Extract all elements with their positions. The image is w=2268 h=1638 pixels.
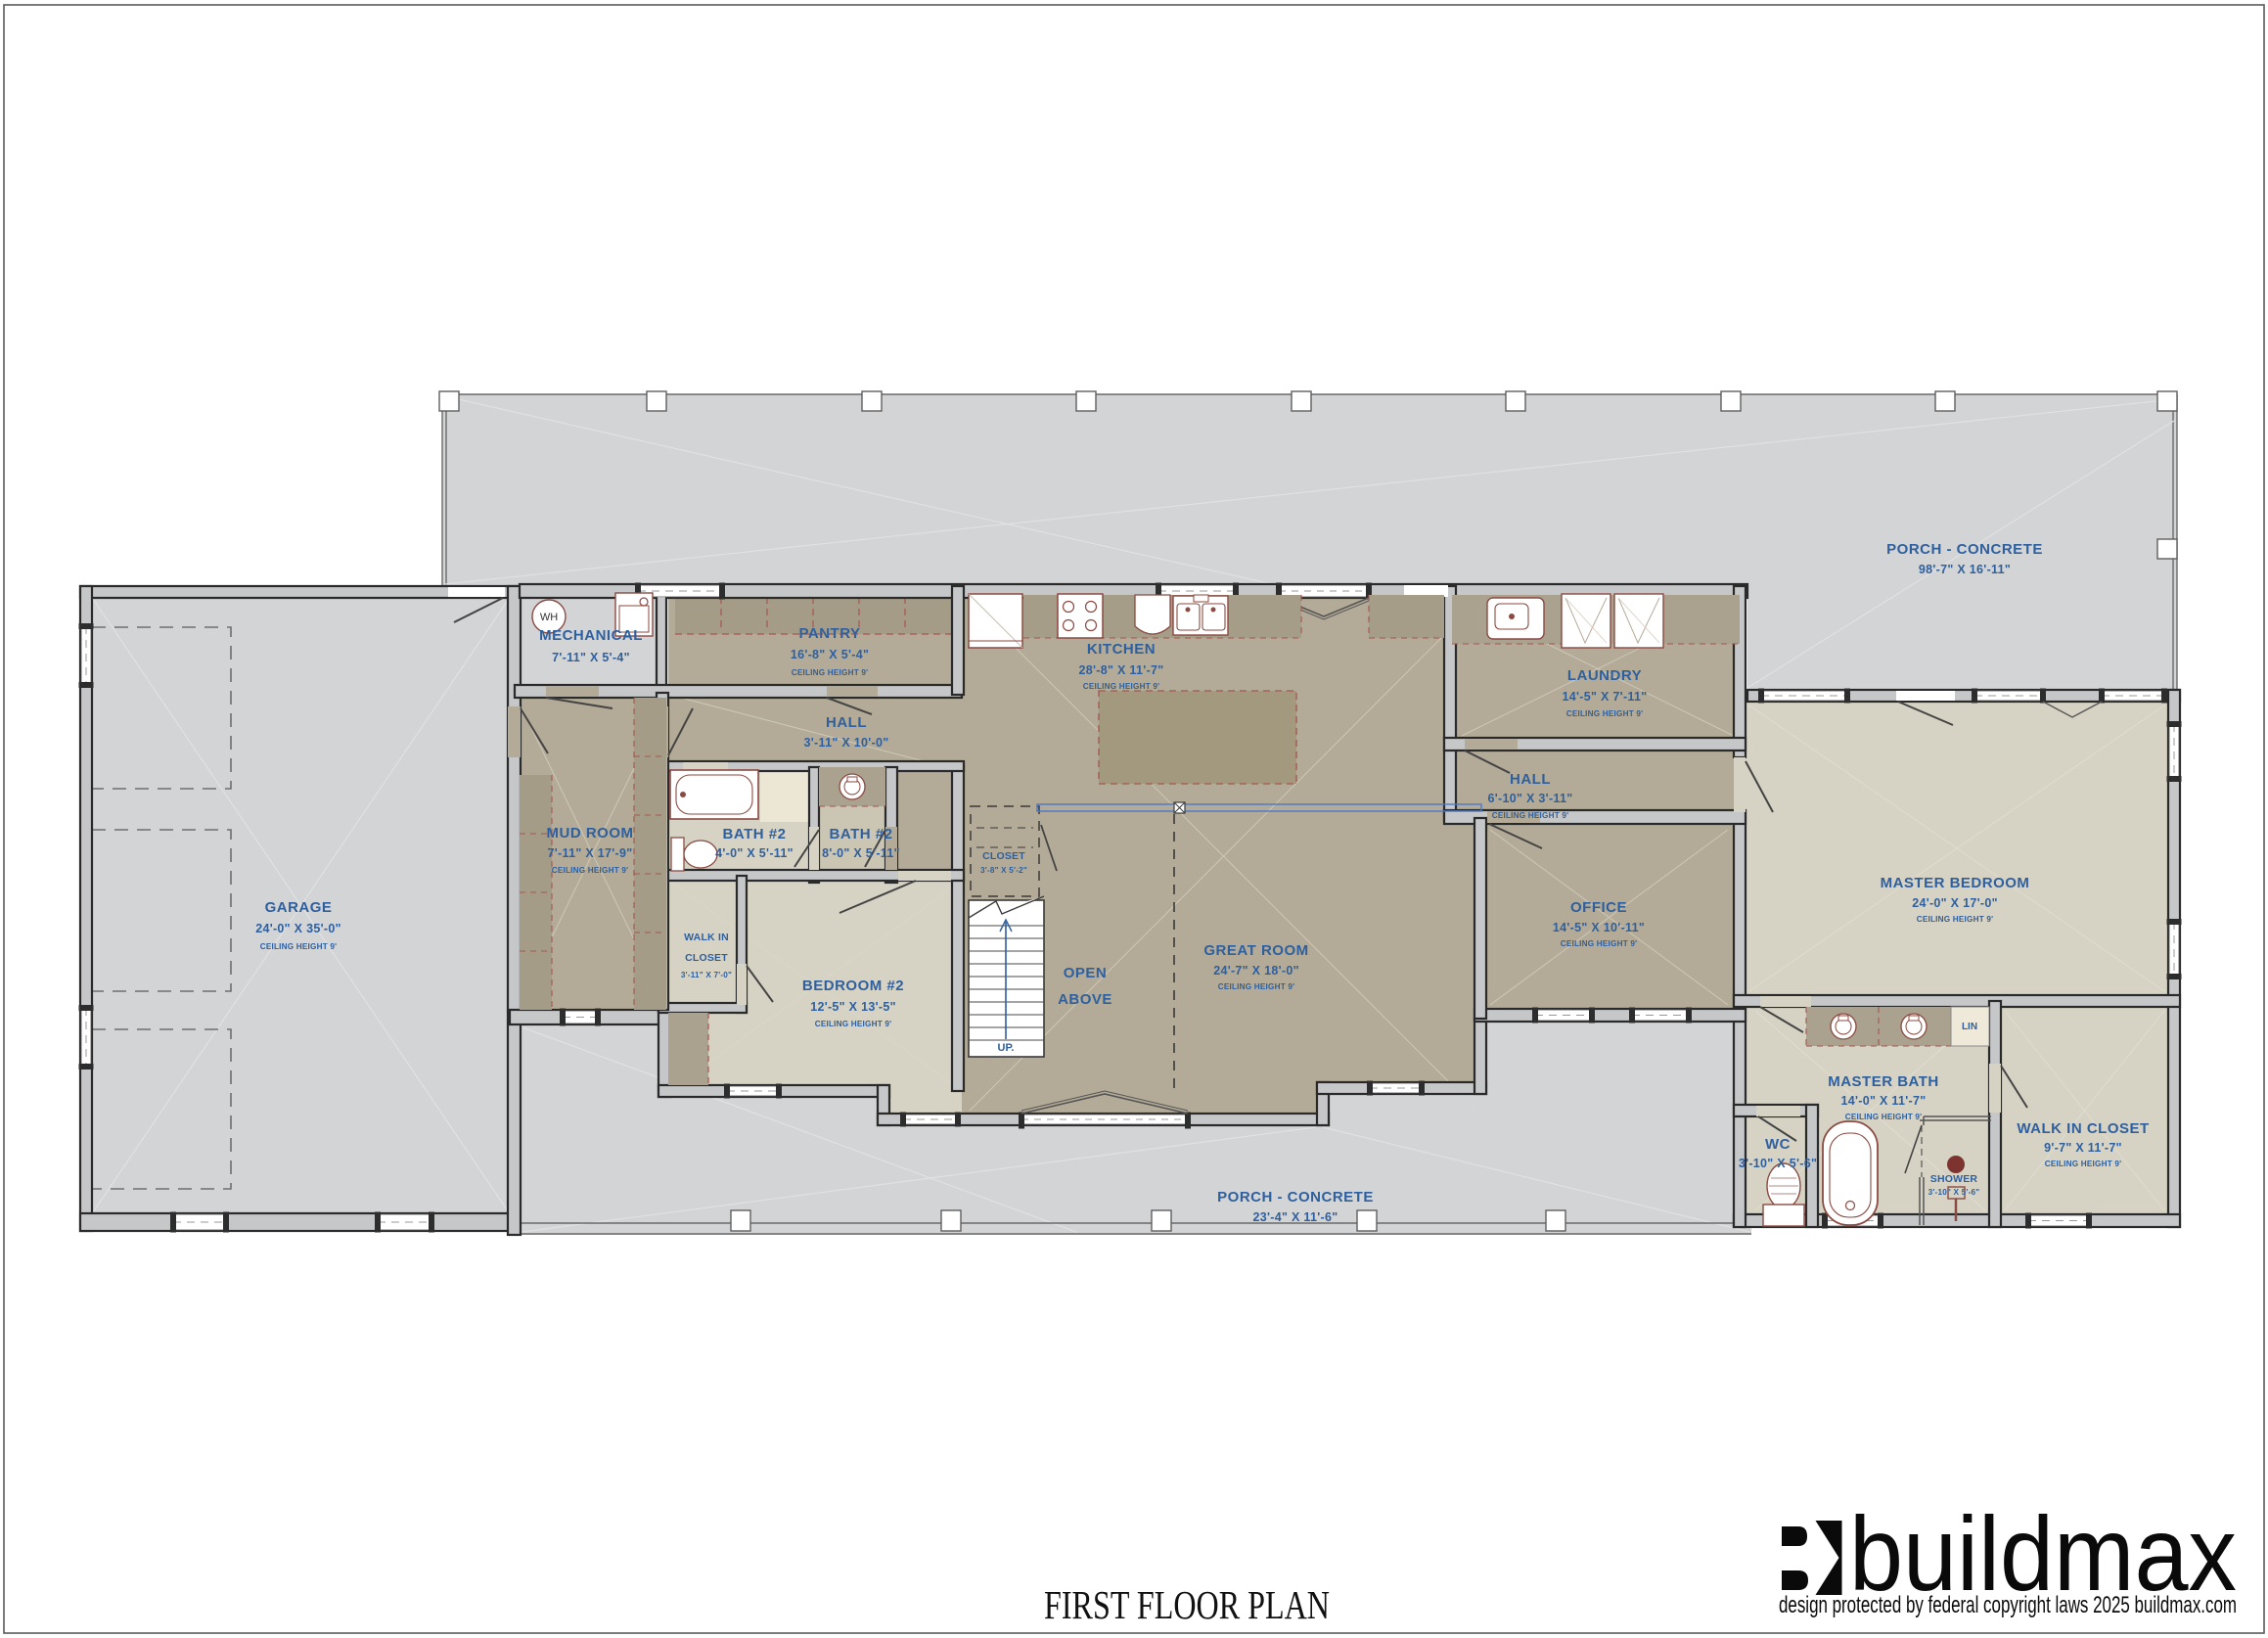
svg-text:CLOSET: CLOSET <box>685 952 728 964</box>
svg-text:CEILING HEIGHT 9': CEILING HEIGHT 9' <box>1566 709 1644 718</box>
svg-text:24'-0" X 35'-0": 24'-0" X 35'-0" <box>255 922 341 935</box>
svg-text:3'-10" X 5'-6": 3'-10" X 5'-6" <box>1739 1157 1817 1170</box>
svg-text:CEILING HEIGHT 9': CEILING HEIGHT 9' <box>1083 682 1160 691</box>
svg-text:MUD ROOM: MUD ROOM <box>547 825 634 842</box>
svg-text:3'-10" X 5'-6": 3'-10" X 5'-6" <box>1928 1188 1980 1197</box>
svg-text:GREAT ROOM: GREAT ROOM <box>1203 942 1308 959</box>
svg-text:24'-7" X 18'-0": 24'-7" X 18'-0" <box>1213 964 1299 978</box>
svg-text:98'-7" X 16'-11": 98'-7" X 16'-11" <box>1919 563 2011 576</box>
svg-text:BATH #2: BATH #2 <box>830 826 893 842</box>
svg-text:7'-11" X 5'-4": 7'-11" X 5'-4" <box>552 651 630 664</box>
svg-text:CEILING HEIGHT 9': CEILING HEIGHT 9' <box>552 866 629 875</box>
svg-text:6'-10" X 3'-11": 6'-10" X 3'-11" <box>1488 792 1573 805</box>
svg-text:MASTER BATH: MASTER BATH <box>1828 1073 1939 1090</box>
svg-text:WC: WC <box>1765 1136 1791 1153</box>
svg-text:GARAGE: GARAGE <box>265 899 333 916</box>
svg-text:CEILING HEIGHT 9': CEILING HEIGHT 9' <box>1218 982 1295 991</box>
svg-text:PORCH - CONCRETE: PORCH - CONCRETE <box>1217 1189 1374 1206</box>
svg-text:UP.: UP. <box>998 1042 1015 1054</box>
svg-text:14'-5" X 10'-11": 14'-5" X 10'-11" <box>1553 921 1645 934</box>
svg-text:16'-8" X 5'-4": 16'-8" X 5'-4" <box>791 648 869 661</box>
svg-text:4'-0" X 5'-11": 4'-0" X 5'-11" <box>715 846 794 860</box>
svg-text:LAUNDRY: LAUNDRY <box>1567 667 1642 684</box>
svg-text:7'-11" X 17'-9": 7'-11" X 17'-9" <box>548 846 633 860</box>
svg-text:WALK IN: WALK IN <box>684 932 729 943</box>
svg-text:FIRST FLOOR PLAN: FIRST FLOOR PLAN <box>1044 1582 1330 1627</box>
svg-text:PORCH - CONCRETE: PORCH - CONCRETE <box>1886 541 2043 558</box>
svg-text:14'-5" X 7'-11": 14'-5" X 7'-11" <box>1563 690 1648 704</box>
svg-text:HALL: HALL <box>826 714 867 731</box>
svg-text:9'-7" X 11'-7": 9'-7" X 11'-7" <box>2044 1141 2122 1155</box>
svg-text:CEILING HEIGHT 9': CEILING HEIGHT 9' <box>260 942 338 951</box>
svg-text:CEILING HEIGHT 9': CEILING HEIGHT 9' <box>1917 915 1994 924</box>
svg-text:LIN: LIN <box>1962 1022 1977 1032</box>
svg-text:KITCHEN: KITCHEN <box>1087 641 1156 658</box>
svg-text:24'-0" X 17'-0": 24'-0" X 17'-0" <box>1912 896 1998 910</box>
svg-text:PANTRY: PANTRY <box>799 625 861 642</box>
svg-text:OFFICE: OFFICE <box>1570 899 1627 916</box>
svg-text:8'-0" X 5'-11": 8'-0" X 5'-11" <box>822 846 900 860</box>
svg-text:design protected by federal co: design protected by federal copyright la… <box>1779 1592 2237 1618</box>
svg-text:CEILING HEIGHT 9': CEILING HEIGHT 9' <box>815 1020 892 1028</box>
svg-text:CEILING HEIGHT 9': CEILING HEIGHT 9' <box>2045 1160 2122 1168</box>
svg-text:3'-11" X 10'-0": 3'-11" X 10'-0" <box>804 736 889 750</box>
svg-text:12'-5" X 13'-5": 12'-5" X 13'-5" <box>810 1000 896 1014</box>
svg-text:3'-11" X 7'-0": 3'-11" X 7'-0" <box>681 971 732 979</box>
svg-text:28'-8" X 11'-7": 28'-8" X 11'-7" <box>1079 663 1164 677</box>
svg-text:HALL: HALL <box>1510 771 1551 788</box>
svg-text:WALK IN CLOSET: WALK IN CLOSET <box>2017 1120 2149 1137</box>
svg-text:23'-4" X 11'-6": 23'-4" X 11'-6" <box>1253 1210 1338 1224</box>
svg-text:BATH #2: BATH #2 <box>723 826 787 842</box>
svg-text:CEILING HEIGHT 9': CEILING HEIGHT 9' <box>792 668 869 677</box>
svg-text:14'-0" X 11'-7": 14'-0" X 11'-7" <box>1841 1094 1927 1108</box>
svg-text:OPEN: OPEN <box>1064 965 1108 981</box>
svg-text:3'-8" X 5'-2": 3'-8" X 5'-2" <box>980 866 1027 875</box>
svg-text:CEILING HEIGHT 9': CEILING HEIGHT 9' <box>1561 939 1638 948</box>
svg-text:SHOWER: SHOWER <box>1930 1173 1978 1185</box>
svg-text:BEDROOM #2: BEDROOM #2 <box>802 978 904 994</box>
svg-text:CEILING HEIGHT 9': CEILING HEIGHT 9' <box>1845 1113 1923 1121</box>
svg-text:CEILING HEIGHT 9': CEILING HEIGHT 9' <box>1492 811 1569 820</box>
svg-text:MECHANICAL: MECHANICAL <box>539 627 643 644</box>
svg-text:WH: WH <box>540 612 558 623</box>
svg-text:ABOVE: ABOVE <box>1058 991 1112 1008</box>
svg-text:MASTER BEDROOM: MASTER BEDROOM <box>1881 875 2030 891</box>
svg-text:CLOSET: CLOSET <box>982 850 1025 862</box>
